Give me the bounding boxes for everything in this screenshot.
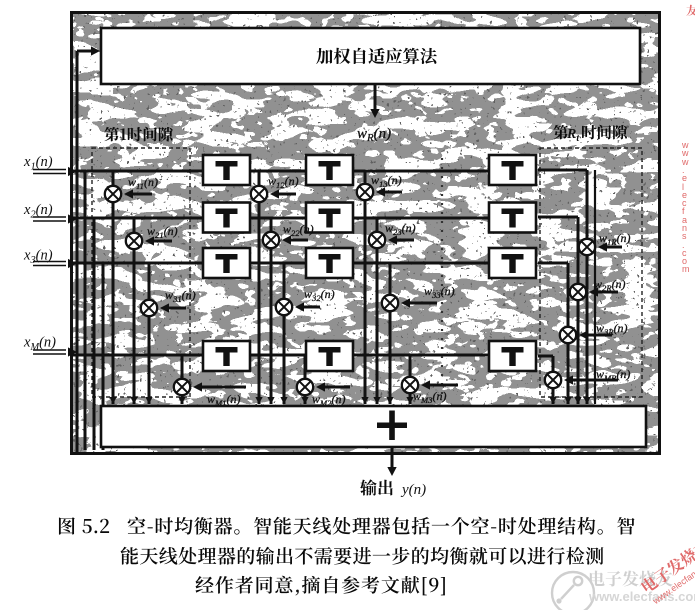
svg-text:m: m <box>682 264 690 274</box>
svg-text:wR(n): wR(n) <box>357 126 391 144</box>
svg-text:x3(n): x3(n) <box>23 248 53 267</box>
svg-text:y(n): y(n) <box>400 482 426 498</box>
svg-text:x2(n): x2(n) <box>23 202 53 221</box>
svg-text:www.elecfans.com: www.elecfans.com <box>588 589 695 604</box>
